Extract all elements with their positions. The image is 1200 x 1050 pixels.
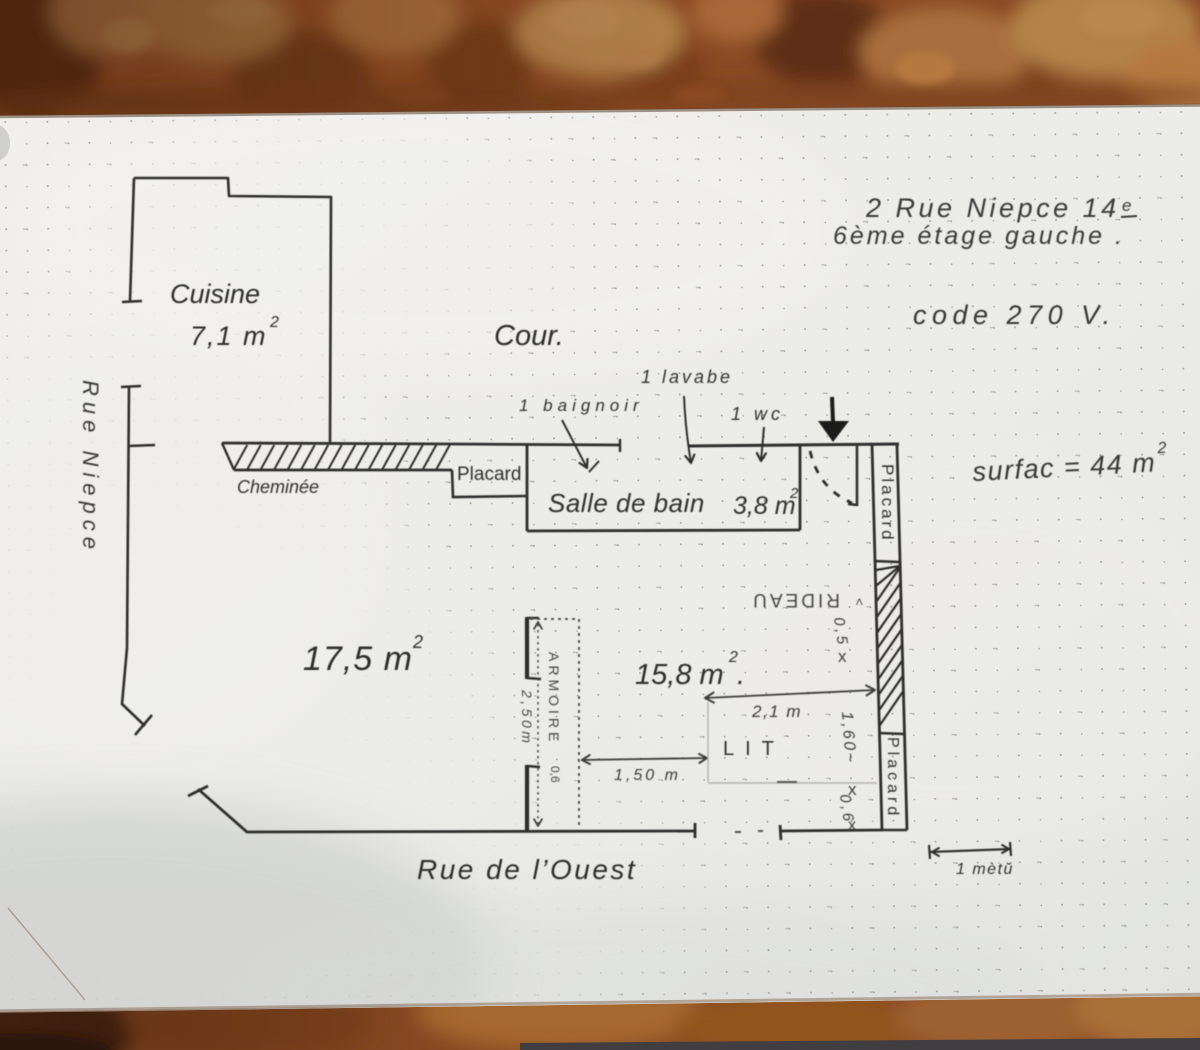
svg-text:2: 2 (789, 485, 799, 502)
svg-text:Cuisine: Cuisine (170, 279, 260, 309)
svg-text:2: 2 (269, 314, 279, 331)
svg-text:ARMOIRE: ARMOIRE (546, 652, 562, 745)
svg-text:2,50m: 2,50m (519, 689, 535, 746)
svg-text:3,8 m: 3,8 m (733, 492, 796, 520)
svg-text:17,5 m: 17,5 m (303, 640, 413, 678)
svg-text:Rue Niepce: Rue Niepce (78, 380, 103, 555)
svg-text:0,6: 0,6 (548, 766, 562, 783)
svg-text:x: x (848, 817, 856, 834)
svg-text:Rue de l’Ouest: Rue de l’Ouest (417, 854, 637, 885)
svg-text:2: 2 (412, 632, 423, 652)
svg-text:Salle de bain: Salle de bain (548, 488, 705, 518)
svg-text:<: < (852, 598, 867, 606)
svg-text:6ème étage gauche .: 6ème étage gauche . (833, 222, 1125, 250)
svg-text:Cour.: Cour. (494, 320, 564, 352)
svg-text:Placard: Placard (457, 464, 521, 485)
svg-text:Placard: Placard (884, 737, 901, 819)
svg-text:1 lavabe: 1 lavabe (641, 367, 733, 387)
svg-text:15,8 m: 15,8 m (635, 659, 724, 691)
svg-text:7,1 m: 7,1 m (190, 321, 268, 351)
svg-text:e: e (1122, 196, 1131, 215)
svg-text:2: 2 (1156, 440, 1167, 458)
svg-text:2 Rue Niepce 14: 2 Rue Niepce 14 (865, 193, 1120, 223)
svg-text:LIT: LIT (723, 738, 785, 760)
svg-text:Placard: Placard (878, 464, 897, 543)
svg-text:x: x (838, 647, 847, 666)
svg-text:RIDEAU: RIDEAU (750, 589, 840, 610)
svg-text:1 baignoir: 1 baignoir (519, 396, 644, 415)
svg-text:1 wc: 1 wc (731, 404, 784, 424)
svg-text:1 mètŭ: 1 mètŭ (956, 861, 1014, 878)
svg-text:code 270 V.: code 270 V. (913, 300, 1116, 330)
svg-text:1,50 m: 1,50 m (614, 767, 681, 784)
svg-text:Cheminée: Cheminée (237, 477, 319, 497)
svg-text:2,1 m: 2,1 m (751, 702, 802, 721)
svg-text:.: . (737, 659, 745, 691)
